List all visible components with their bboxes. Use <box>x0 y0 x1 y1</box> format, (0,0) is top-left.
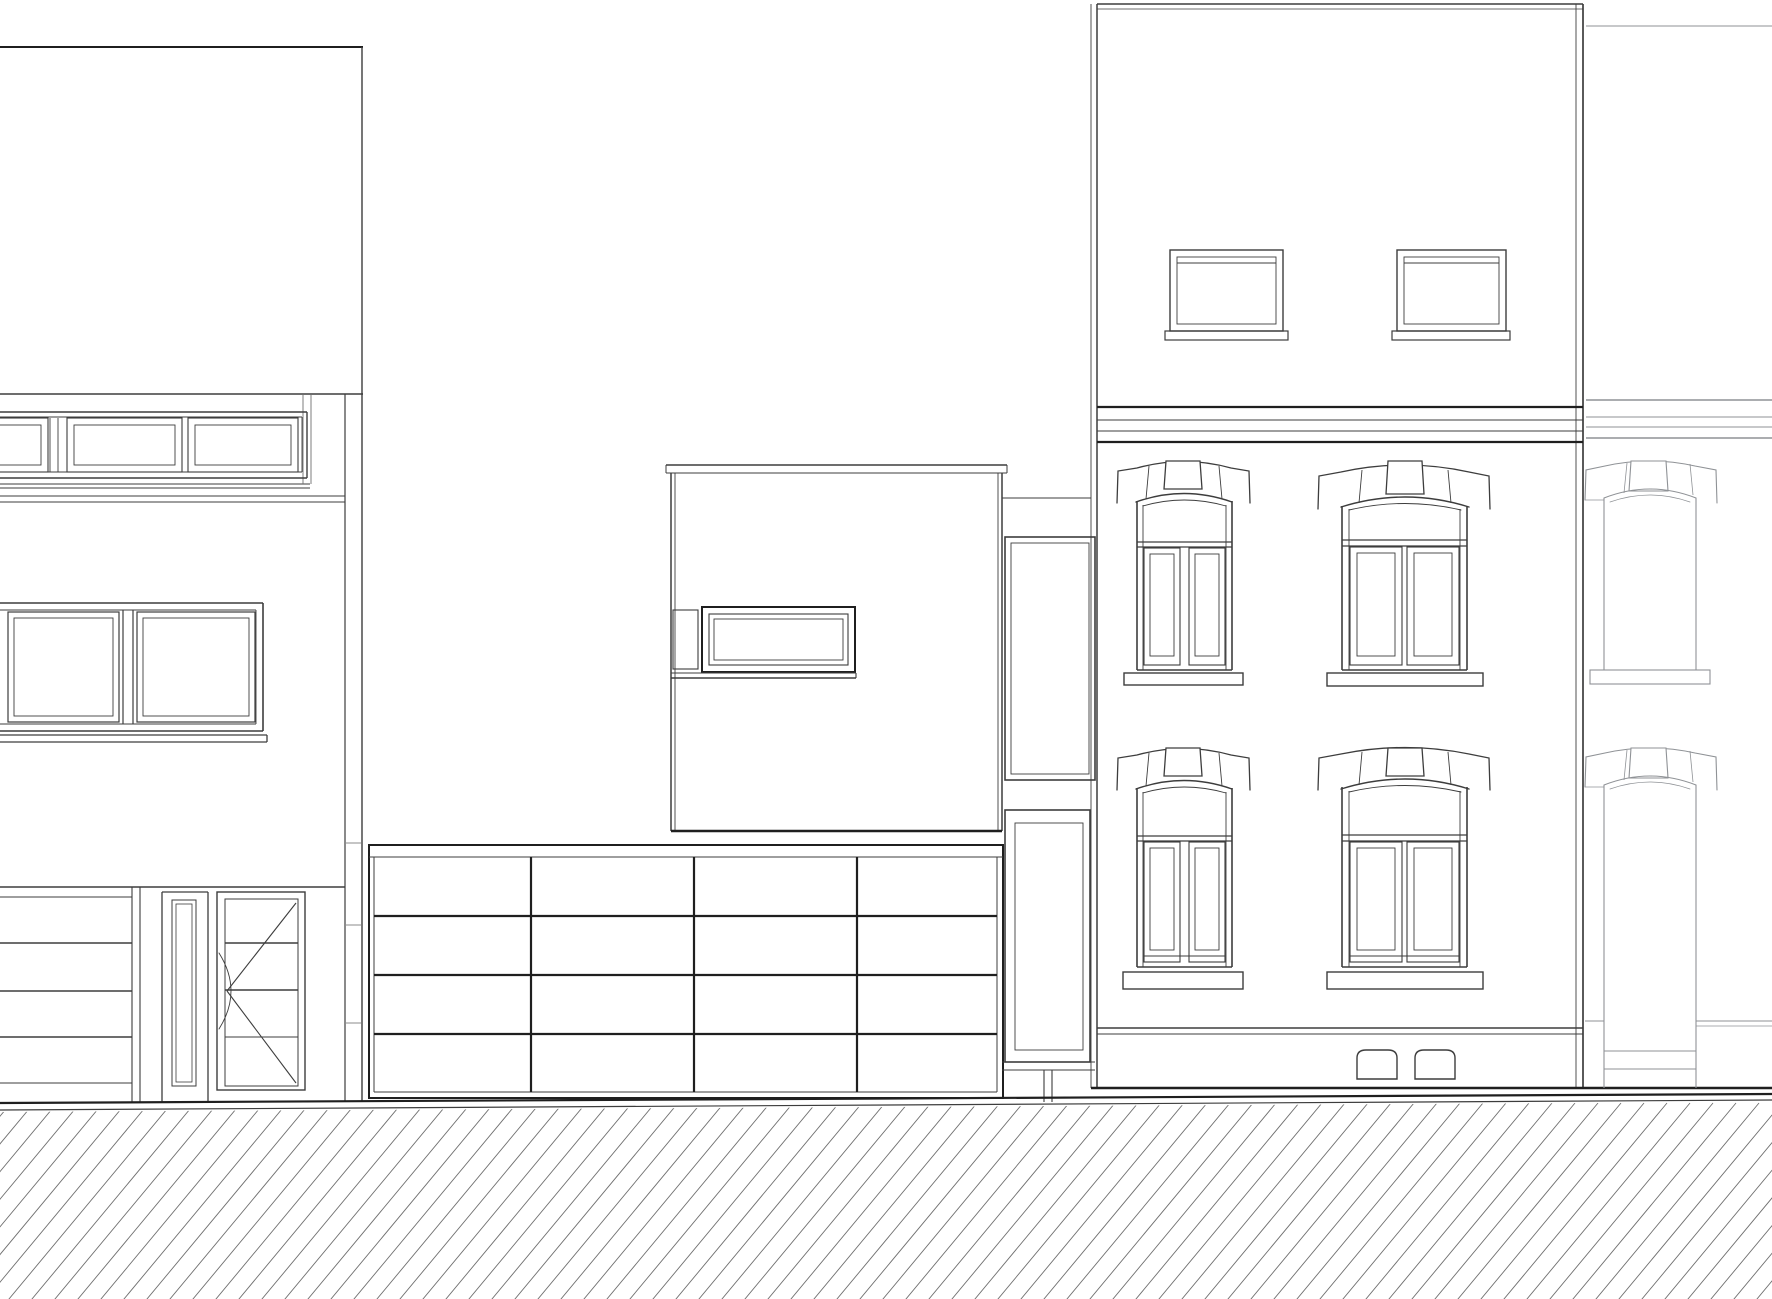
left-building-window <box>0 603 267 742</box>
street-ground <box>0 1094 1772 1299</box>
neighbor-building-shell <box>1586 26 1772 438</box>
neighbor-entry-door <box>1585 748 1772 1088</box>
left-building-clerestory-windows <box>0 412 307 478</box>
modern-house-window <box>671 607 856 678</box>
neighbor-arched-window-upper <box>1585 461 1717 684</box>
garden-fence <box>369 845 1003 1098</box>
left-building-garage-door <box>0 887 140 1102</box>
townhouse-arched-window-upper-right <box>1318 461 1490 686</box>
stair-bay-entry <box>1002 810 1095 1102</box>
townhouse-arched-window-upper-left <box>1117 461 1250 685</box>
stair-bay-upper-window <box>1005 537 1095 780</box>
left-building-entry-door <box>217 892 305 1090</box>
elevation-svg <box>0 0 1772 1299</box>
ground-hatch-lines <box>0 1103 1772 1299</box>
left-building-side-door <box>162 892 208 1102</box>
townhouse-cellar-vents <box>1357 1050 1455 1079</box>
elevation-drawing <box>0 0 1772 1299</box>
modern-house <box>666 465 1007 831</box>
townhouse-attic-window-right <box>1392 250 1510 340</box>
townhouse-attic-window-left <box>1165 250 1288 340</box>
townhouse-arched-window-lower-left <box>1117 748 1250 989</box>
townhouse-arched-window-lower-right <box>1318 748 1490 990</box>
